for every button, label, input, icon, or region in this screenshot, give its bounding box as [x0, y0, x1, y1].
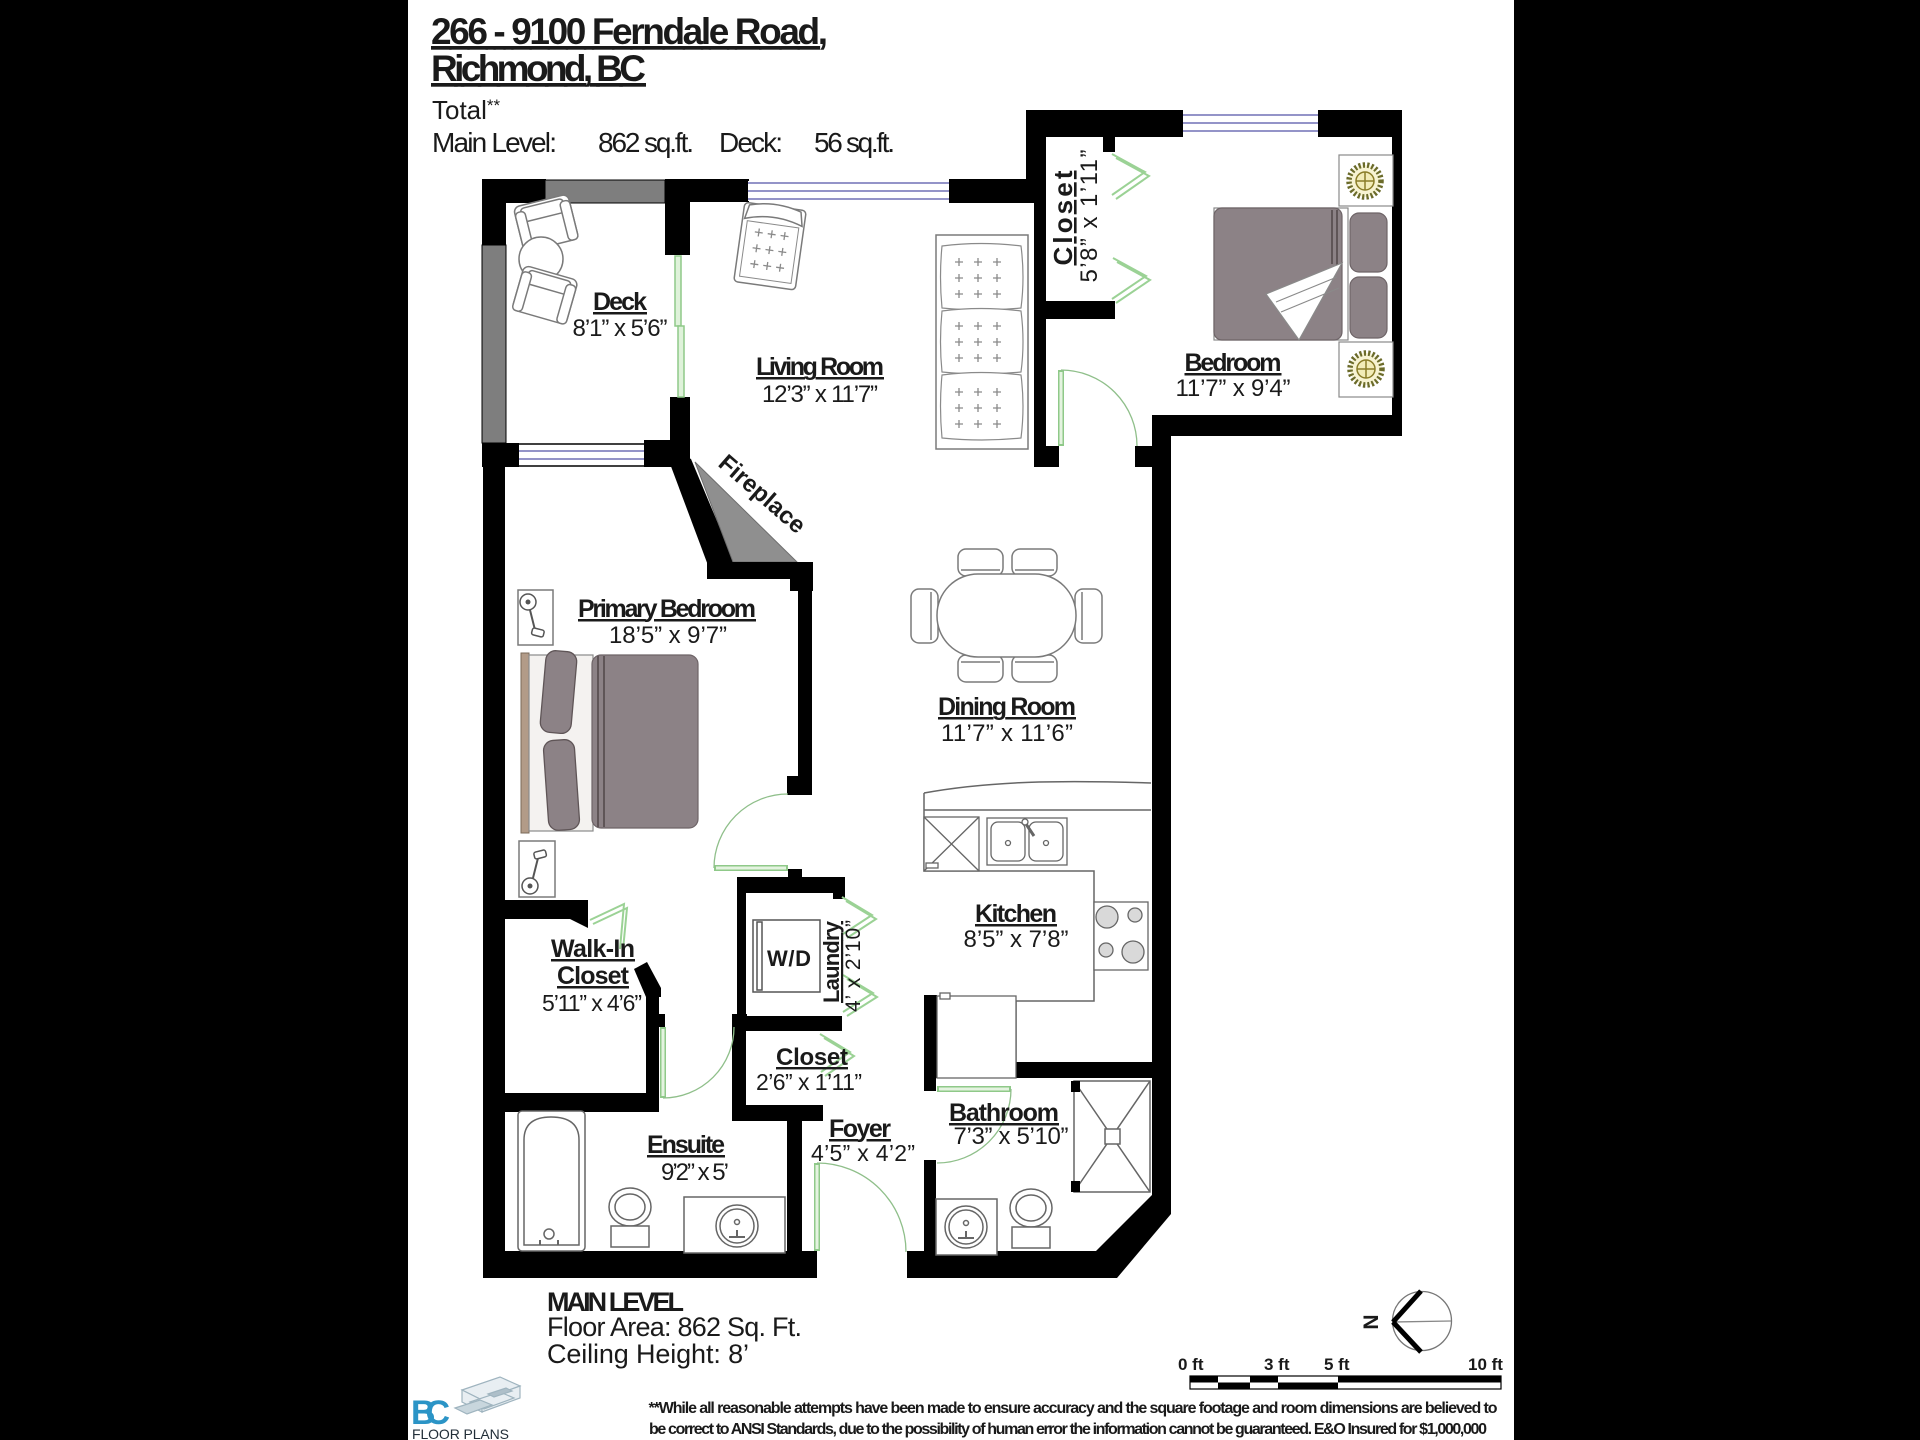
- svg-text:FLOOR PLANS: FLOOR PLANS: [412, 1426, 509, 1440]
- svg-text:862 sq.ft.: 862 sq.ft.: [598, 127, 694, 158]
- svg-text:56 sq.ft.: 56 sq.ft.: [814, 127, 895, 158]
- svg-text:0 ft: 0 ft: [1178, 1355, 1204, 1374]
- svg-text:Walk-In: Walk-In: [551, 935, 635, 963]
- svg-text:be correct to ANSI Standards,: be correct to ANSI Standards, due to the…: [649, 1421, 1487, 1438]
- svg-text:2’6” x 1’11”: 2’6” x 1’11”: [756, 1069, 862, 1095]
- svg-text:8’5” x 7’8”: 8’5” x 7’8”: [964, 926, 1069, 953]
- svg-text:4’ x 2’10”: 4’ x 2’10”: [842, 920, 865, 1012]
- svg-text:Dining Room: Dining Room: [938, 693, 1076, 721]
- svg-text:9’2” x 5’: 9’2” x 5’: [661, 1159, 729, 1186]
- svg-text:Floor Area: 862 Sq. Ft.: Floor Area: 862 Sq. Ft.: [547, 1312, 802, 1342]
- svg-text:Bedroom: Bedroom: [1185, 349, 1282, 377]
- svg-text:Ceiling Height: 8’: Ceiling Height: 8’: [547, 1339, 749, 1369]
- svg-text:Deck: Deck: [593, 288, 647, 316]
- svg-text:Living Room: Living Room: [756, 353, 884, 381]
- svg-text:Closet: Closet: [557, 962, 630, 990]
- svg-text:Deck:: Deck:: [719, 127, 783, 158]
- svg-text:18’5” x 9’7”: 18’5” x 9’7”: [609, 622, 727, 649]
- svg-text:Closet: Closet: [1048, 170, 1078, 265]
- svg-text:3 ft: 3 ft: [1264, 1355, 1290, 1374]
- svg-text:11’7” x 9’4”: 11’7” x 9’4”: [1176, 375, 1291, 402]
- svg-text:5’8” x 1’11”: 5’8” x 1’11”: [1076, 150, 1103, 283]
- svg-text:Foyer: Foyer: [829, 1115, 891, 1143]
- svg-text:W/D: W/D: [767, 946, 811, 971]
- svg-text:4’5” x 4’2”: 4’5” x 4’2”: [811, 1140, 915, 1166]
- svg-text:Richmond, BC: Richmond, BC: [431, 48, 646, 89]
- svg-text:10 ft: 10 ft: [1468, 1355, 1503, 1374]
- svg-text:Closet: Closet: [776, 1044, 848, 1071]
- svg-text:8’1” x 5’6”: 8’1” x 5’6”: [573, 315, 668, 342]
- svg-text:Kitchen: Kitchen: [975, 900, 1057, 928]
- svg-text:Ensuite: Ensuite: [647, 1131, 725, 1159]
- svg-text:Primary Bedroom: Primary Bedroom: [578, 595, 756, 623]
- svg-text:**While all reasonable attempt: **While all reasonable attempts have bee…: [649, 1400, 1498, 1417]
- svg-text:12’3” x 11’7”: 12’3” x 11’7”: [762, 381, 878, 408]
- svg-text:Laundry: Laundry: [819, 920, 844, 1003]
- svg-text:Main Level:: Main Level:: [432, 127, 557, 158]
- svg-text:7’3” x 5’10”: 7’3” x 5’10”: [954, 1123, 1069, 1150]
- svg-text:266 - 9100 Ferndale Road,: 266 - 9100 Ferndale Road,: [431, 11, 828, 52]
- svg-text:N: N: [1360, 1314, 1383, 1329]
- svg-text:5 ft: 5 ft: [1324, 1355, 1350, 1374]
- svg-text:11’7” x 11’6”: 11’7” x 11’6”: [941, 720, 1073, 747]
- svg-text:5’11” x 4’6”: 5’11” x 4’6”: [542, 990, 642, 1016]
